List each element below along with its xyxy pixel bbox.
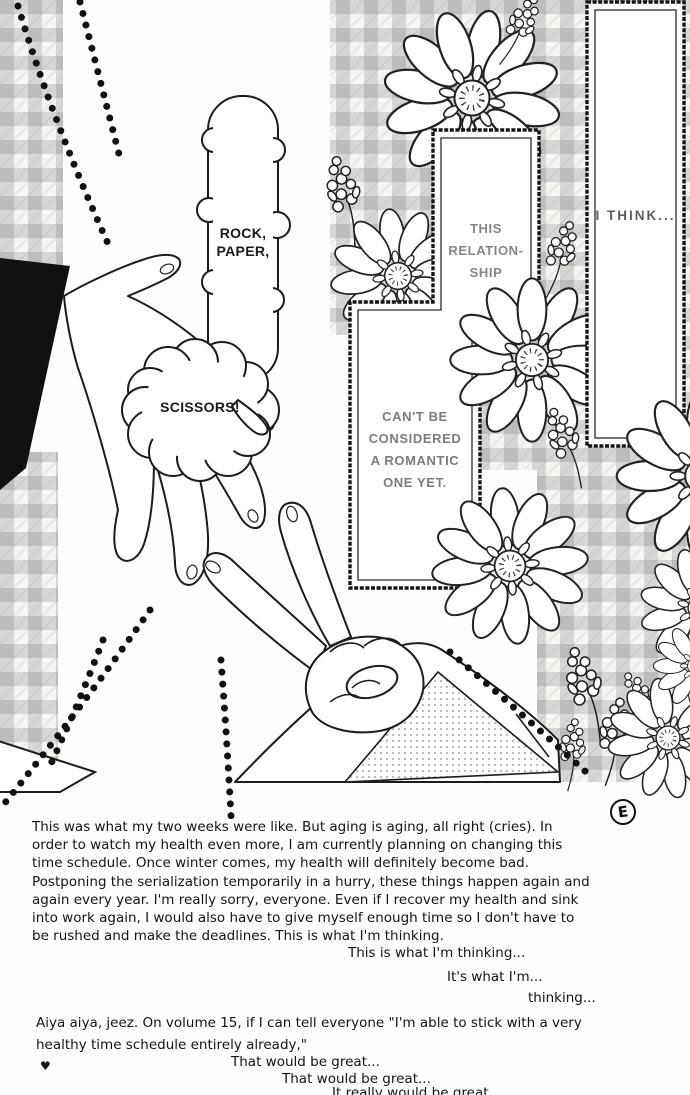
notes-line: Aiya aiya, jeez. On volume 15, if I can … [36, 1013, 582, 1035]
notes-line: This was what my two weeks were like. Bu… [32, 818, 590, 836]
notes-line: time schedule. Once winter comes, my hea… [32, 854, 590, 872]
echo-line-3: thinking... [528, 990, 596, 1006]
notes-line: again every year. I'm really sorry, ever… [32, 891, 590, 909]
echo-line-2: It's what I'm... [447, 969, 542, 985]
notes-line: be rushed and make the deadlines. This i… [32, 927, 590, 945]
author-notes-paragraph-1: This was what my two weeks were like. Bu… [32, 818, 590, 945]
caption-box-i-think [587, 2, 684, 446]
manga-page: THIS RELATION- SHIP CAN'T BE CONSIDERED … [0, 0, 690, 1095]
notes-line: into work again, I would also have to gi… [32, 909, 590, 927]
notes-line: order to watch my health even more, I am… [32, 836, 590, 854]
speech-bubble-column [197, 96, 290, 382]
great-line-3: It really would be great... [332, 1085, 501, 1095]
notes-line-text: healthy time schedule entirely already," [36, 1035, 582, 1057]
echo-line-1: This is what I'm thinking... [348, 945, 525, 961]
great-line-1: That would be great... [231, 1054, 380, 1070]
notes-line: Postponing the serialization temporarily… [32, 873, 590, 891]
